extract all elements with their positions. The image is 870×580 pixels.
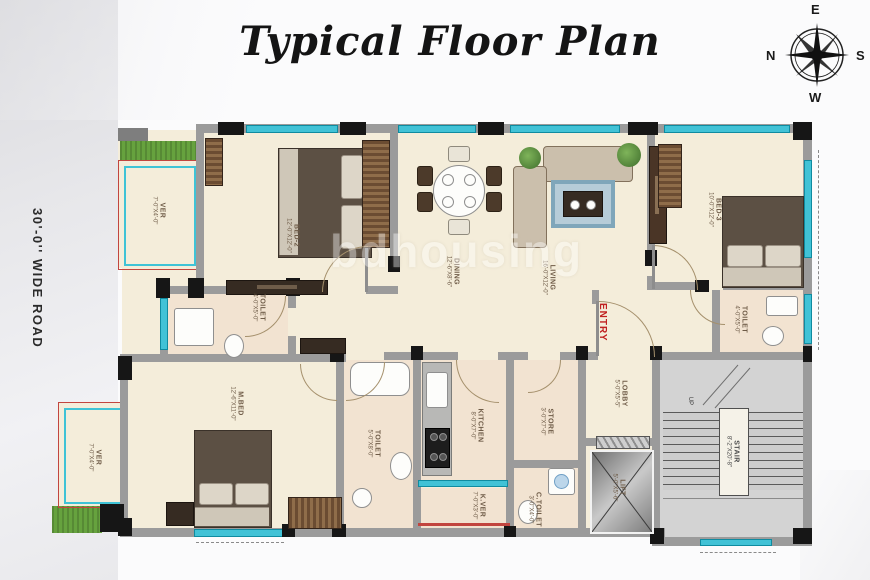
- column: [100, 504, 124, 532]
- dimension-line: [196, 542, 284, 543]
- toilet-icon: [762, 326, 784, 346]
- wall: [506, 352, 514, 536]
- window: [700, 539, 772, 546]
- dimension-line: [700, 552, 776, 553]
- room-label-kitchen: KITCHEN8'-0"X7'-0": [469, 390, 484, 460]
- grass-top: [120, 141, 196, 160]
- room-label-mbed: M.BED12'-6"X11'-0": [229, 368, 244, 438]
- kitchen-sink-icon: [426, 372, 448, 408]
- bed-icon: [722, 196, 804, 288]
- dining-table-icon: [433, 165, 485, 217]
- window: [510, 125, 620, 133]
- kver-rail: [418, 523, 510, 526]
- veranda-top-parapet: [118, 128, 148, 141]
- column: [576, 346, 588, 360]
- window: [398, 125, 476, 133]
- column: [628, 122, 658, 135]
- chair-icon: [486, 192, 502, 212]
- stair-break-lines: [663, 360, 803, 410]
- stove-icon: [425, 428, 450, 468]
- room-label-ver-bottom: VER7'-0"X4'-0": [87, 422, 102, 492]
- room-label-lift: LIFT5'-0"X5'-6": [611, 452, 626, 522]
- room-label-ver-top: VER7'-0"X4'-0": [151, 175, 166, 245]
- chair-icon: [417, 166, 433, 186]
- room-label-toilet-bed3: TOILET4'-0"X5'-0": [733, 284, 748, 354]
- wall: [288, 336, 296, 362]
- plant-icon: [617, 143, 641, 167]
- floor-kver: [421, 488, 506, 528]
- column: [504, 526, 516, 537]
- window: [194, 529, 284, 537]
- column: [803, 346, 812, 362]
- room-label-ctoilet: C.TOILET3'-0"X4'-0": [527, 474, 542, 544]
- shower-tray-icon: [174, 308, 214, 346]
- room-label-bed3: BED-310'-0"X12'-0": [707, 174, 722, 244]
- column: [478, 122, 504, 135]
- room-label-toilet-bed2: TOILET4'-0"X5'-0": [251, 272, 266, 342]
- column: [411, 346, 423, 360]
- washbasin-icon: [352, 488, 372, 508]
- wall: [413, 352, 421, 536]
- wall: [384, 352, 414, 360]
- watermark: bdhousing: [330, 224, 660, 278]
- entry-label: ENTRY: [597, 303, 608, 342]
- column: [156, 278, 170, 298]
- rug-icon: [551, 180, 615, 228]
- wall: [506, 460, 586, 468]
- room-label-stair: STAIR8'-2"X20'-8": [725, 416, 740, 486]
- grass-bottom: [52, 506, 102, 533]
- chair-icon: [448, 146, 470, 162]
- sink-icon: [766, 296, 798, 316]
- toilet-icon: [390, 452, 412, 480]
- cabinet-icon: [205, 138, 223, 186]
- wall: [366, 286, 398, 294]
- room-label-store: STORE3'-0"X7'-0": [539, 386, 554, 456]
- lift-door-hatch: [596, 436, 650, 449]
- floor-plan: VER7'-0"X4'-0" BED-212'-0"X12'-0" DINING…: [0, 0, 870, 580]
- column: [793, 122, 812, 140]
- washing-machine-icon: [548, 468, 575, 495]
- window: [804, 160, 812, 258]
- column: [340, 122, 366, 135]
- column: [188, 278, 204, 298]
- room-label-kver: K.VER7'-0"X3'-0": [471, 470, 486, 540]
- bed-icon: [194, 430, 272, 528]
- column: [218, 122, 244, 135]
- wall: [196, 124, 204, 298]
- cabinet-icon: [300, 338, 346, 354]
- window: [664, 125, 790, 133]
- toilet-icon: [224, 334, 244, 358]
- window: [804, 294, 812, 344]
- plant-icon: [519, 147, 541, 169]
- stair-up-label: UP: [687, 397, 693, 405]
- chair-icon: [417, 192, 433, 212]
- nightstand-icon: [166, 502, 194, 526]
- window: [160, 298, 168, 350]
- column: [118, 356, 132, 380]
- wall: [578, 352, 586, 536]
- room-label-lobby: LOBBY5'-0"X5'-5": [613, 358, 628, 428]
- chair-icon: [486, 166, 502, 186]
- stair-bottom-line: [663, 498, 803, 499]
- column: [793, 528, 812, 544]
- window: [246, 125, 338, 133]
- window: [418, 480, 508, 487]
- wardrobe-icon: [658, 144, 682, 208]
- dimension-line: [818, 150, 819, 350]
- wall: [506, 352, 528, 360]
- room-label-toilet-m: TOILET5'-0"X8'-0": [366, 408, 381, 478]
- wardrobe-icon: [288, 497, 342, 529]
- room-label-bed2: BED-212'-0"X12'-0": [285, 200, 300, 270]
- tv-cabinet-icon: [226, 280, 328, 295]
